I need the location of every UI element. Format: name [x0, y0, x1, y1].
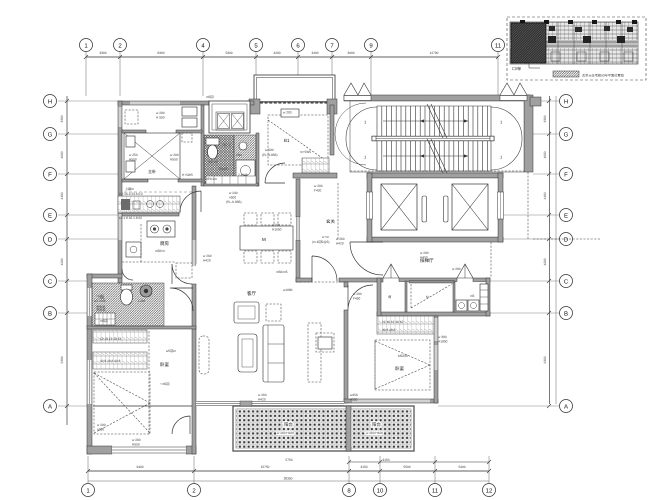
svg-text:12 10 12 10 12: 12 10 12 10 12 [100, 337, 121, 341]
svg-text:+m5回: +m5回 [160, 382, 169, 386]
svg-text:5400: 5400 [458, 465, 465, 469]
svg-text:3150: 3150 [382, 458, 389, 462]
svg-text:m5回: m5回 [100, 319, 108, 323]
svg-text:洗衣机: 洗衣机 [96, 308, 106, 312]
svg-text:+M5: +M5 [98, 296, 105, 300]
svg-text:B1: B1 [284, 138, 290, 143]
svg-text:主卧: 主卧 [148, 169, 156, 174]
svg-text:3300: 3300 [543, 115, 547, 122]
svg-text:上翻m: 上翻m [125, 187, 134, 191]
svg-text:4200: 4200 [273, 51, 280, 55]
svg-text:玄关: 玄关 [326, 219, 335, 224]
svg-text:3900: 3900 [347, 51, 354, 55]
svg-text:38350: 38350 [284, 477, 293, 481]
svg-text:G: G [48, 132, 53, 139]
svg-text:w 250: w 250 [129, 153, 138, 157]
svg-text:w1080: w1080 [283, 288, 293, 292]
svg-text:m5回: m5回 [206, 95, 214, 99]
svg-text:0.2 26.0 23.6 0.2: 0.2 26.0 23.6 0.2 [119, 192, 143, 196]
svg-text:H420: H420 [203, 259, 211, 263]
svg-text:E: E [564, 213, 568, 220]
svg-text:w 200: w 200 [97, 423, 106, 427]
svg-text:2.4WB: 2.4WB [238, 173, 248, 177]
svg-text:厨房: 厨房 [160, 241, 169, 246]
svg-text:M: M [262, 237, 266, 242]
svg-text:9300: 9300 [60, 356, 64, 363]
svg-text:4000: 4000 [543, 151, 547, 158]
svg-text:40 8 40 8 40 8: 40 8 40 8 40 8 [100, 359, 121, 363]
svg-text:F: F [48, 172, 52, 179]
svg-text:B: B [48, 311, 52, 318]
svg-text:#550: #550 [97, 428, 104, 432]
svg-text:1.2M: 1.2M [138, 299, 145, 303]
svg-text:卧室: 卧室 [160, 362, 169, 367]
svg-text:4100: 4100 [543, 192, 547, 199]
svg-text:H550: H550 [132, 443, 140, 447]
svg-text:此单元住宅楼93号平面位置图: 此单元住宅楼93号平面位置图 [582, 74, 624, 78]
svg-text:H: H [564, 99, 568, 106]
svg-text:W2-X0: W2-X0 [208, 160, 218, 164]
svg-text:A550: A550 [350, 398, 358, 402]
svg-text:9300: 9300 [543, 356, 547, 363]
svg-text:w 200: w 200 [452, 267, 461, 271]
svg-text:卧室: 卧室 [395, 366, 404, 371]
svg-text:4000: 4000 [60, 151, 64, 158]
svg-text:H1650: H1650 [272, 228, 282, 232]
svg-text:w 200: w 200 [314, 184, 323, 188]
svg-text:7D7.2: 7D7.2 [222, 143, 231, 147]
svg-text:F: F [564, 172, 568, 179]
svg-text:w 260: w 260 [258, 393, 267, 397]
svg-text:w 200: w 200 [156, 111, 165, 115]
svg-text:D: D [564, 237, 569, 244]
svg-text:w 260: w 260 [336, 237, 345, 241]
svg-text:B: B [564, 311, 568, 318]
svg-text:口/标: 口/标 [512, 66, 521, 71]
svg-text:3300: 3300 [99, 51, 106, 55]
svg-text:3300: 3300 [60, 115, 64, 122]
svg-text:m5: m5 [470, 294, 475, 298]
svg-text:11: 11 [495, 43, 502, 50]
svg-text:E: E [48, 213, 52, 220]
svg-text:5750: 5750 [285, 458, 292, 462]
svg-text:C: C [564, 279, 569, 286]
svg-text:11: 11 [432, 488, 439, 495]
svg-text:12700: 12700 [430, 51, 439, 55]
svg-text:G: G [564, 132, 569, 139]
svg-text:H420: H420 [258, 398, 266, 402]
svg-text:3400: 3400 [311, 51, 318, 55]
svg-text:15750: 15750 [261, 465, 270, 469]
svg-text:62 1.8 62 1.8 62: 62 1.8 62 1.8 62 [119, 216, 142, 220]
svg-text:w 260 H420: w 260 H420 [366, 431, 383, 435]
svg-text:客厅: 客厅 [247, 291, 256, 296]
svg-text:D: D [48, 237, 53, 244]
svg-text:m+5W5: m+5W5 [300, 150, 311, 154]
svg-text:w 200: w 200 [132, 438, 141, 442]
svg-text:5300: 5300 [225, 51, 232, 55]
svg-text:m50/m: m50/m [155, 249, 165, 253]
svg-text:H550: H550 [129, 158, 137, 162]
svg-text:w 200: w 200 [170, 153, 179, 157]
svg-text:w 240: w 240 [229, 191, 238, 195]
svg-text:M: M [426, 295, 429, 299]
svg-text:w 200: w 200 [420, 251, 429, 255]
svg-text:阳台: 阳台 [372, 422, 381, 427]
svg-text:4200: 4200 [543, 258, 547, 265]
svg-text:w450: w450 [350, 393, 358, 397]
svg-text:#500: #500 [229, 196, 236, 200]
svg-text:H550: H550 [170, 158, 178, 162]
svg-text:9400: 9400 [136, 465, 143, 469]
svg-text:12 10 12 10 12: 12 10 12 10 12 [382, 320, 403, 324]
svg-text:M5200: M5200 [398, 354, 408, 358]
svg-text:H450: H450 [420, 256, 428, 260]
svg-text:H: H [48, 99, 52, 106]
svg-text:H+5W5: H+5W5 [182, 173, 193, 177]
svg-text:w 300: w 300 [438, 335, 447, 339]
svg-text:w+m: w+m [322, 235, 329, 239]
svg-text:4100: 4100 [60, 192, 64, 199]
svg-text:H420: H420 [336, 242, 344, 246]
svg-text:40 8 40 8: 40 8 40 8 [382, 328, 396, 332]
svg-text:H1800: H1800 [438, 340, 448, 344]
svg-text:w 200: w 200 [283, 111, 292, 115]
svg-text:(PL-3-05B): (PL-3-05B) [262, 153, 278, 157]
svg-text:w 260 H420: w 260 H420 [277, 431, 294, 435]
svg-text:12: 12 [486, 488, 493, 495]
svg-text:阳台: 阳台 [284, 422, 293, 427]
svg-text:4200: 4200 [60, 258, 64, 265]
svg-text:5500: 5500 [403, 465, 410, 469]
svg-text:w 200: w 200 [353, 292, 362, 296]
svg-text:10: 10 [377, 488, 384, 495]
svg-text:3150: 3150 [360, 465, 367, 469]
svg-text:F420: F420 [314, 189, 321, 193]
svg-text:A: A [564, 404, 568, 411]
svg-text:8300: 8300 [157, 51, 164, 55]
svg-text:A: A [48, 404, 52, 411]
svg-text:3P0.2m: 3P0.2m [206, 177, 217, 181]
svg-text:25m: 25m [236, 153, 243, 157]
svg-text:w 500: w 500 [265, 148, 274, 152]
svg-text:C: C [48, 279, 53, 286]
svg-text:w 260: w 260 [203, 254, 212, 258]
svg-text:(PL-0-05B): (PL-0-05B) [226, 200, 242, 204]
svg-text:F450: F450 [353, 297, 360, 301]
svg-text:w100: w100 [272, 223, 280, 227]
svg-text:H 550: H 550 [156, 116, 165, 120]
svg-text:w5回m: w5回m [166, 349, 176, 353]
svg-text:(m 4回5@5): (m 4回5@5) [312, 240, 329, 244]
svg-text:卫生间: 卫生间 [218, 167, 228, 171]
svg-text:m50/m5: m50/m5 [276, 270, 288, 274]
